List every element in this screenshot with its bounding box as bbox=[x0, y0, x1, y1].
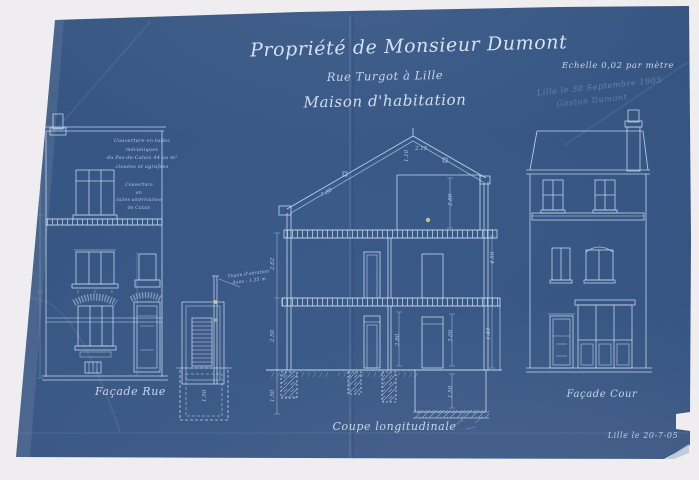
svg-text:3.00: 3.00 bbox=[448, 329, 454, 342]
vent-shaft-detail-drawing bbox=[176, 276, 240, 420]
title-line-2: Rue Turgot à Lille bbox=[305, 68, 465, 85]
date-note: Lille le 20-7-05 bbox=[598, 431, 688, 440]
scanned-blueprint-page: 2.15 1.10 7.88 2.80 2.62 2.50 1.50 2.80 … bbox=[0, 0, 699, 480]
scale-note: Echelle 0,02 par mètre bbox=[558, 61, 678, 71]
wall-annotation-line1: Couverture bbox=[125, 183, 153, 188]
wall-annotation-line3: tuiles américaines bbox=[116, 198, 161, 203]
label-coupe-longitudinale: Coupe longitudinale bbox=[322, 420, 467, 433]
label-facade-rue: Façade Rue bbox=[68, 385, 193, 398]
facade-cour-drawing bbox=[526, 110, 652, 372]
title-line-3: Maison d'habitation bbox=[290, 90, 480, 111]
roof-material-annotation: Couverture en tuiles mécaniques du Pas-d… bbox=[98, 137, 186, 171]
svg-text:1.50: 1.50 bbox=[202, 389, 208, 402]
svg-text:2.80: 2.80 bbox=[448, 193, 454, 207]
label-facade-cour: Façade Cour bbox=[552, 389, 652, 400]
blueprint-sheet: 2.15 1.10 7.88 2.80 2.62 2.50 1.50 2.80 … bbox=[0, 0, 699, 480]
svg-text:1.50: 1.50 bbox=[270, 389, 276, 402]
svg-text:2.80: 2.80 bbox=[395, 333, 401, 347]
roof-annotation-line2: du Pas-de-Calais 44 au m² bbox=[107, 155, 178, 161]
svg-text:2.50: 2.50 bbox=[270, 329, 276, 343]
wall-annotation-line2: en bbox=[136, 191, 142, 196]
svg-text:1.10: 1.10 bbox=[404, 149, 410, 162]
section-drawing bbox=[266, 128, 502, 418]
svg-text:1.50: 1.50 bbox=[448, 385, 454, 398]
svg-text:1.40: 1.40 bbox=[486, 327, 492, 340]
roof-annotation-line3: clouées et agrafées bbox=[116, 164, 169, 170]
wall-material-annotation: Couverture en tuiles américaines de Cala… bbox=[110, 182, 168, 213]
svg-text:2.15: 2.15 bbox=[414, 146, 428, 152]
roof-annotation-line1: Couverture en tuiles mécaniques bbox=[114, 138, 170, 153]
wall-annotation-line4: de Calais bbox=[128, 206, 151, 211]
svg-text:4.50: 4.50 bbox=[490, 251, 496, 265]
